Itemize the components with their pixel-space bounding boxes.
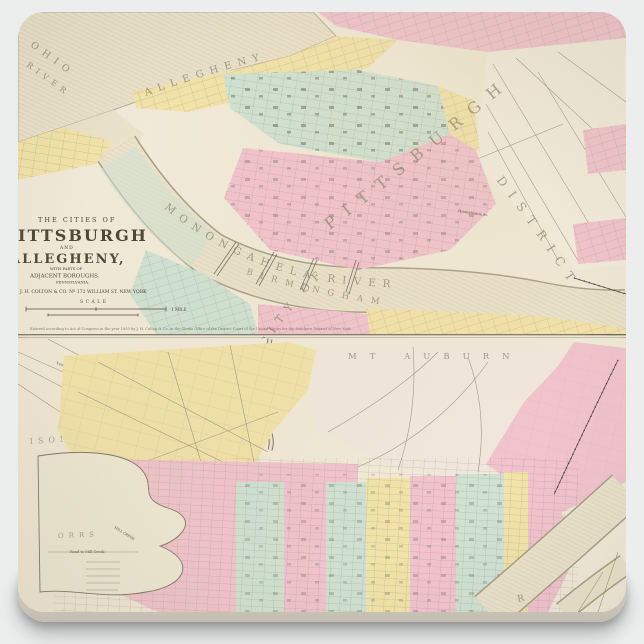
scale-label: SCALE <box>80 299 109 305</box>
title-line-and: AND <box>59 245 74 251</box>
lower-map-panel: Turnpike Turnpike ISON MT AUBURN <box>18 339 626 612</box>
map-panel-divider <box>18 335 626 338</box>
title-line-pittsburgh: PITTSBURGH <box>18 226 148 245</box>
upper-map-pittsburgh-allegheny: OHIO RIVER ALLEGHENY PITTSBURGH CITY OF … <box>18 12 626 348</box>
mt-auburn-label: MT AUBURN <box>348 352 523 362</box>
orrs-district-letters: ORRS <box>58 531 99 540</box>
vintage-map-print: OHIO RIVER ALLEGHENY PITTSBURGH CITY OF … <box>18 12 626 612</box>
product-photo: { "product": { "description": "Square st… <box>0 0 644 644</box>
copyright-line: Entered according to Act of Congress in … <box>30 327 352 331</box>
title-line-allegheny: ALLEGHENY, <box>18 252 126 267</box>
stone-coaster: OHIO RIVER ALLEGHENY PITTSBURGH CITY OF … <box>18 12 626 612</box>
publisher-imprint: J. H. COLTON & CO. Nº 172 WILLIAM ST. NE… <box>19 289 147 295</box>
title-line-pennsylvania: PENNSYLVANIA. <box>56 280 89 285</box>
scale-mile-label: 1 MILE <box>171 307 187 312</box>
title-line-with-parts-of: WITH PARTS OF <box>50 266 83 271</box>
title-line-the-cities-of: THE CITIES OF <box>38 216 116 224</box>
